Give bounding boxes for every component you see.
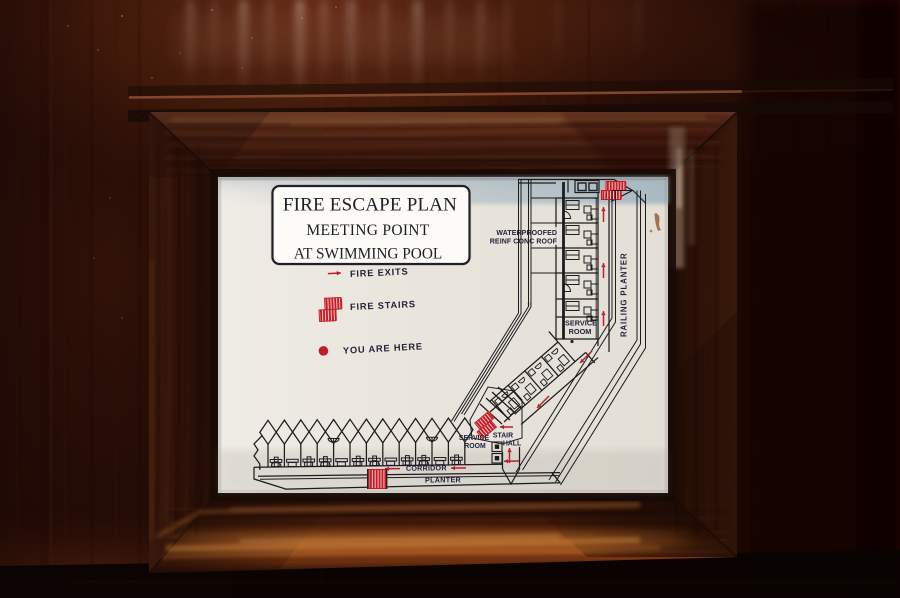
svg-text:CORRIDOR: CORRIDOR: [406, 463, 447, 473]
svg-text:FIRE ESCAPE PLAN: FIRE ESCAPE PLAN: [283, 195, 457, 216]
svg-text:STAIR: STAIR: [493, 433, 513, 440]
svg-text:REINF CONC ROOF: REINF CONC ROOF: [490, 239, 558, 246]
svg-text:ROOM: ROOM: [569, 327, 592, 336]
svg-text:RAILING PLANTER: RAILING PLANTER: [620, 252, 629, 337]
svg-text:MEETING POINT: MEETING POINT: [306, 222, 429, 239]
svg-text:PLANTER: PLANTER: [425, 475, 462, 484]
svg-text:ROOM: ROOM: [464, 443, 486, 450]
svg-text:HALL: HALL: [503, 441, 521, 448]
svg-text:AT SWIMMING POOL: AT SWIMMING POOL: [294, 246, 442, 263]
svg-text:WATERPROOFED: WATERPROOFED: [496, 230, 557, 237]
